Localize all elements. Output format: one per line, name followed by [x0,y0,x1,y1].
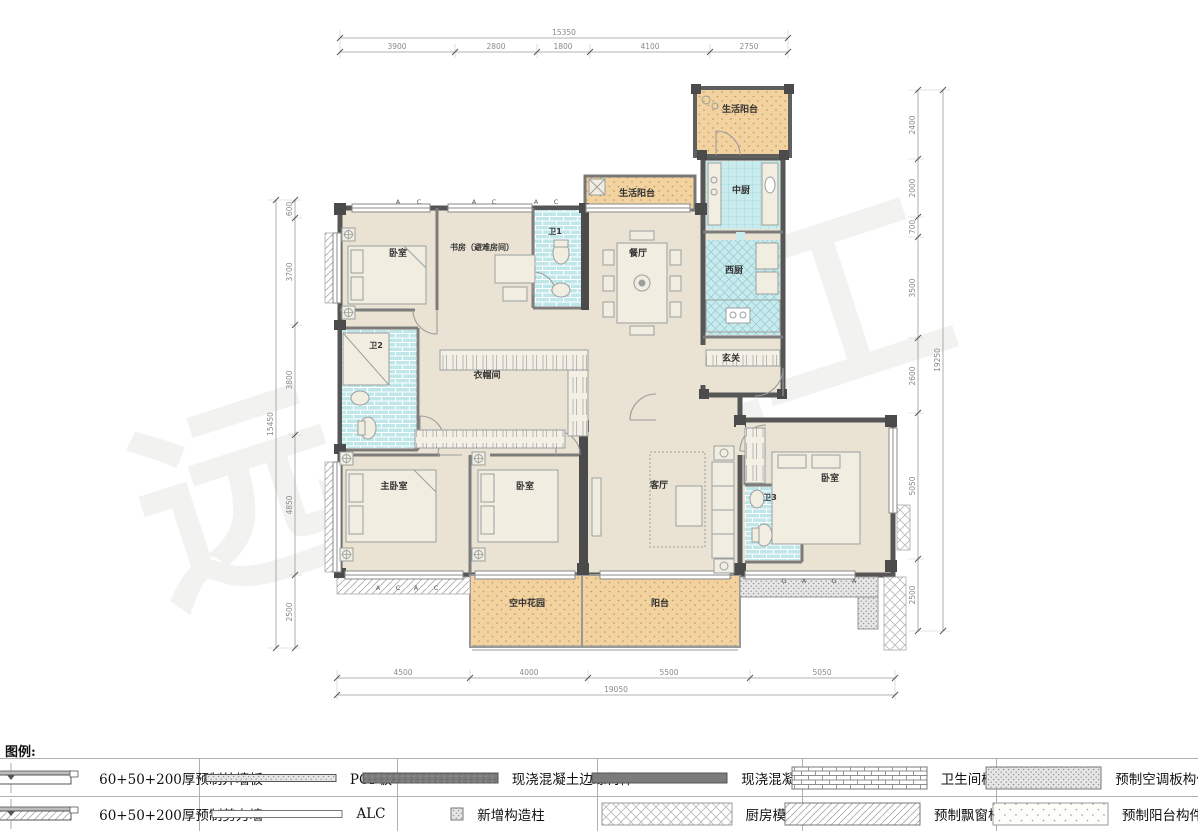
svg-text:5500: 5500 [659,668,678,677]
legend-symbol-concrete-edge-icon [362,772,499,784]
label-closet: 衣帽间 [473,369,500,381]
legend-item-alc: ALC [200,796,398,831]
label-kitchen-west: 西厨 [725,265,743,276]
floor-plan-drawing: 远大住工 [0,0,1198,736]
legend-symbol-ac-panel-icon [985,766,1102,790]
svg-text:3500: 3500 [908,278,917,297]
legend-symbol-exterior-wall-icon [0,763,86,793]
label-life-balcony-top: 生活阳台 [722,103,758,115]
legend-item-kitchen-module: 厨房模块 [598,796,803,831]
svg-text:C: C [554,198,559,206]
legend-symbol-bathroom-module-icon [791,766,928,790]
svg-text:C: C [417,198,422,206]
svg-text:3800: 3800 [285,370,294,389]
svg-text:5050: 5050 [908,476,917,495]
label-life-balcony-left: 生活阳台 [619,187,655,199]
svg-text:A: A [534,198,539,206]
legend-item-ac-panel: 预制空调板构件 [997,758,1198,796]
label-dining: 餐厅 [628,247,647,259]
label-bath3: 卫3 [763,493,777,502]
label-bedroom-top-left: 卧室 [389,247,407,259]
legend-symbol-balcony-member-icon [992,802,1109,826]
legend-item-cast-concrete: 现浇混凝土 [598,758,803,796]
legend-symbol-new-column-icon [450,807,464,821]
legend-item-bathroom-module: 卫生间模块 [803,758,997,796]
svg-text:3700: 3700 [285,262,294,281]
svg-text:15450: 15450 [266,412,275,436]
legend-symbol-alc-icon [211,809,343,819]
svg-text:2500: 2500 [908,585,917,604]
svg-text:4500: 4500 [393,668,412,677]
svg-text:A: A [472,198,477,206]
svg-text:C: C [492,198,497,206]
precast-ac-panel-band [740,577,878,629]
svg-text:19250: 19250 [933,348,942,372]
svg-text:4850: 4850 [285,495,294,514]
svg-text:4000: 4000 [519,668,538,677]
svg-text:600: 600 [285,202,294,217]
svg-text:15350: 15350 [552,28,576,37]
svg-text:3900: 3900 [387,42,406,51]
svg-text:G: G [781,577,786,585]
svg-text:1800: 1800 [553,42,572,51]
svg-text:5050: 5050 [812,668,831,677]
svg-text:G: G [831,577,836,585]
svg-text:700: 700 [908,220,917,235]
legend-item-new-column: 新增构造柱 [398,796,598,831]
room-sky-garden [470,575,582,647]
svg-text:2800: 2800 [486,42,505,51]
legend-item-concrete-edge: 现浇混凝土边缘构件 [398,758,598,796]
svg-text:A: A [852,577,857,585]
label-sky-garden: 空中花园 [509,597,545,609]
dim-top: 15350 3900 2800 1800 4100 2750 [337,28,791,58]
legend-symbol-cast-concrete-icon [591,772,728,784]
legend-label: 预制空调板构件 [1115,768,1198,788]
svg-text:A: A [802,577,807,585]
foyer-cabinet [706,350,780,366]
legend-symbol-shear-wall-icon [0,799,86,829]
svg-text:A: A [376,584,381,592]
legend-symbol-kitchen-module-icon [601,802,733,826]
svg-text:2600: 2600 [908,366,917,385]
svg-text:4100: 4100 [640,42,659,51]
legend-label: 预制阳台构件 [1122,804,1198,824]
label-bath1: 卫1 [548,227,562,236]
svg-text:C: C [396,584,401,592]
legend-symbol-bay-window-icon [784,802,921,826]
label-living: 客厅 [649,479,668,491]
dim-bottom: 19050 4500 4000 5500 5050 [334,668,898,700]
svg-text:2400: 2400 [908,115,917,134]
svg-text:2000: 2000 [908,178,917,197]
label-kitchen-middle: 中厨 [732,184,750,196]
label-balcony: 阳台 [651,597,669,609]
svg-text:2500: 2500 [285,602,294,621]
svg-text:A: A [414,584,419,592]
label-study: 书房（避难房间） [450,242,514,252]
label-bedroom-middle: 卧室 [516,480,534,492]
legend-item-exterior-wall: 60+50+200厚预制外墙板 [0,758,200,796]
svg-text:C: C [434,584,439,592]
svg-text:19050: 19050 [604,685,628,694]
legend-label: ALC [356,806,385,822]
legend-item-balcony-member: 预制阳台构件 [997,796,1198,831]
svg-text:A: A [396,198,401,206]
floor-plan-sheet: 远大住工 [0,0,1198,831]
legend-symbol-pcf-icon [205,773,337,783]
legend-item-bay-window: 预制飘窗构件 [803,796,997,831]
legend-item-shear-wall: 60+50+200厚预制剪力墙 [0,796,200,831]
legend-grid: 60+50+200厚预制外墙板 PCF板 现浇混凝土边缘构件 现浇混凝土 卫生间… [0,758,1198,831]
legend-label: 新增构造柱 [477,804,545,824]
room-balcony [582,575,740,647]
label-bedroom-right: 卧室 [821,472,839,484]
label-bath2: 卫2 [369,341,383,350]
svg-text:2750: 2750 [739,42,758,51]
label-foyer: 玄关 [722,352,740,364]
label-master-bedroom: 主卧室 [380,480,407,492]
